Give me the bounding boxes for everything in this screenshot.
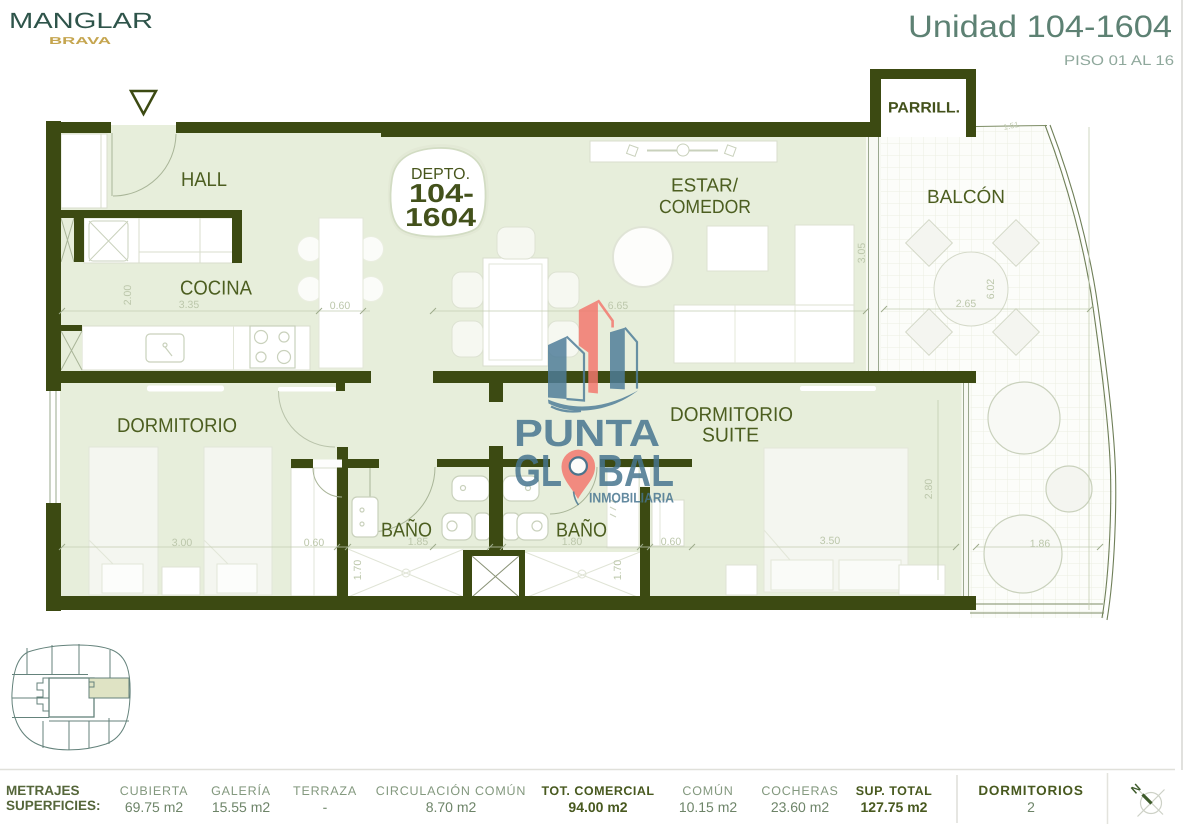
svg-text:HALL: HALL bbox=[181, 169, 227, 191]
svg-text:GL: GL bbox=[514, 445, 562, 496]
svg-text:COMÚN: COMÚN bbox=[682, 784, 733, 798]
svg-text:23.60 m2: 23.60 m2 bbox=[771, 799, 830, 815]
svg-text:1604: 1604 bbox=[405, 202, 477, 232]
svg-text:CIRCULACIÓN COMÚN: CIRCULACIÓN COMÚN bbox=[376, 784, 526, 798]
svg-text:2.00: 2.00 bbox=[122, 285, 134, 306]
svg-text:DORMITORIO: DORMITORIO bbox=[117, 415, 237, 437]
svg-text:BAL: BAL bbox=[597, 445, 674, 496]
svg-text:0.60: 0.60 bbox=[304, 537, 325, 549]
svg-text:PISO 01 AL 16: PISO 01 AL 16 bbox=[1064, 52, 1174, 68]
svg-text:TOT. COMERCIAL: TOT. COMERCIAL bbox=[541, 784, 654, 798]
svg-text:TERRAZA: TERRAZA bbox=[293, 784, 357, 798]
svg-text:PARRILL.: PARRILL. bbox=[888, 100, 960, 117]
svg-text:3.05: 3.05 bbox=[856, 243, 868, 264]
svg-text:-: - bbox=[323, 799, 328, 815]
svg-text:94.00 m2: 94.00 m2 bbox=[568, 799, 627, 815]
svg-text:COCINA: COCINA bbox=[180, 278, 253, 300]
svg-text:1.70: 1.70 bbox=[612, 560, 624, 581]
svg-text:DORMITORIO: DORMITORIO bbox=[670, 404, 793, 426]
svg-text:SUITE: SUITE bbox=[702, 425, 759, 447]
svg-text:SUP. TOTAL: SUP. TOTAL bbox=[856, 784, 933, 798]
svg-text:127.75 m2: 127.75 m2 bbox=[861, 799, 928, 815]
svg-text:COMEDOR: COMEDOR bbox=[659, 197, 751, 218]
svg-text:2.80: 2.80 bbox=[923, 479, 935, 500]
svg-text:CUBIERTA: CUBIERTA bbox=[120, 784, 188, 798]
svg-text:Unidad 104-1604: Unidad 104-1604 bbox=[908, 9, 1172, 44]
svg-text:10.15 m2: 10.15 m2 bbox=[679, 799, 738, 815]
svg-text:2: 2 bbox=[1027, 799, 1035, 815]
svg-text:0.60: 0.60 bbox=[330, 300, 351, 312]
svg-text:69.75 m2: 69.75 m2 bbox=[125, 799, 184, 815]
svg-text:0.60: 0.60 bbox=[661, 536, 682, 548]
svg-text:2.65: 2.65 bbox=[956, 298, 977, 310]
svg-text:1.70: 1.70 bbox=[352, 560, 364, 581]
svg-text:3.50: 3.50 bbox=[820, 535, 841, 547]
svg-text:6.65: 6.65 bbox=[608, 300, 629, 312]
svg-text:BALCÓN: BALCÓN bbox=[927, 186, 1005, 208]
svg-text:N: N bbox=[1129, 782, 1143, 796]
svg-text:BRAVA: BRAVA bbox=[49, 36, 111, 47]
svg-text:DORMITORIOS: DORMITORIOS bbox=[978, 783, 1083, 798]
svg-text:INMOBILIARIA: INMOBILIARIA bbox=[589, 490, 674, 506]
svg-text:3.00: 3.00 bbox=[172, 537, 193, 549]
svg-text:SUPERFICIES:: SUPERFICIES: bbox=[6, 798, 101, 813]
svg-text:15.55 m2: 15.55 m2 bbox=[212, 799, 271, 815]
svg-text:ESTAR/: ESTAR/ bbox=[671, 176, 739, 197]
svg-text:1.86: 1.86 bbox=[1030, 538, 1051, 550]
svg-text:METRAJES: METRAJES bbox=[6, 783, 80, 798]
svg-text:8.70 m2: 8.70 m2 bbox=[426, 799, 477, 815]
svg-text:1.80: 1.80 bbox=[562, 536, 583, 548]
svg-text:3.35: 3.35 bbox=[179, 299, 200, 311]
svg-text:1.85: 1.85 bbox=[408, 536, 429, 548]
svg-text:6.02: 6.02 bbox=[985, 279, 997, 300]
svg-text:GALERÍA: GALERÍA bbox=[211, 784, 271, 798]
svg-text:MANGLAR: MANGLAR bbox=[9, 8, 153, 33]
svg-text:COCHERAS: COCHERAS bbox=[761, 784, 838, 798]
